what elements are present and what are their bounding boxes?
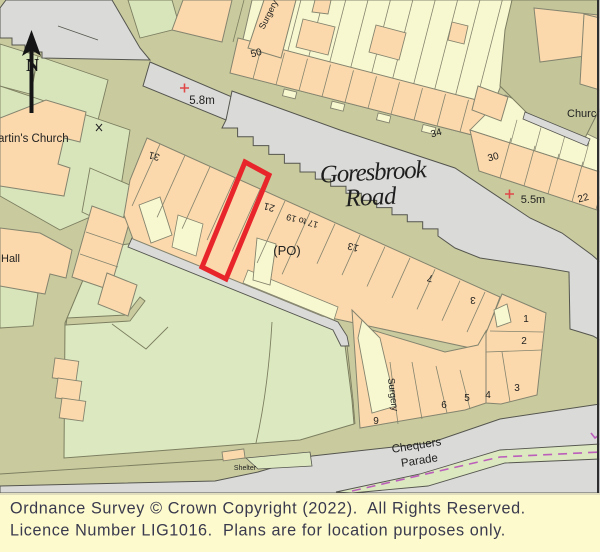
svg-text:5.5m: 5.5m (521, 194, 545, 206)
svg-text:N: N (26, 55, 39, 75)
svg-text:1: 1 (523, 314, 529, 325)
svg-text:artin's Church: artin's Church (0, 133, 69, 145)
svg-text:3: 3 (470, 294, 476, 305)
svg-text:9: 9 (373, 416, 379, 427)
svg-text:(PO): (PO) (273, 243, 300, 258)
svg-text:Licence Number LIG1016. Plans: Licence Number LIG1016. Plans are for lo… (10, 522, 506, 540)
svg-text:Church: Church (567, 108, 600, 120)
svg-text:Shelter: Shelter (234, 465, 257, 472)
svg-text:5: 5 (464, 393, 470, 404)
svg-text:2: 2 (521, 336, 527, 347)
svg-text:Road: Road (344, 183, 398, 213)
svg-text:Ordnance Survey © Crown Copyri: Ordnance Survey © Crown Copyright (2022)… (10, 500, 526, 518)
svg-text:Hall: Hall (1, 253, 20, 265)
svg-text:4: 4 (485, 390, 491, 401)
svg-text:6: 6 (441, 400, 447, 411)
svg-text:3: 3 (514, 383, 520, 394)
svg-text:5.8m: 5.8m (189, 95, 215, 107)
